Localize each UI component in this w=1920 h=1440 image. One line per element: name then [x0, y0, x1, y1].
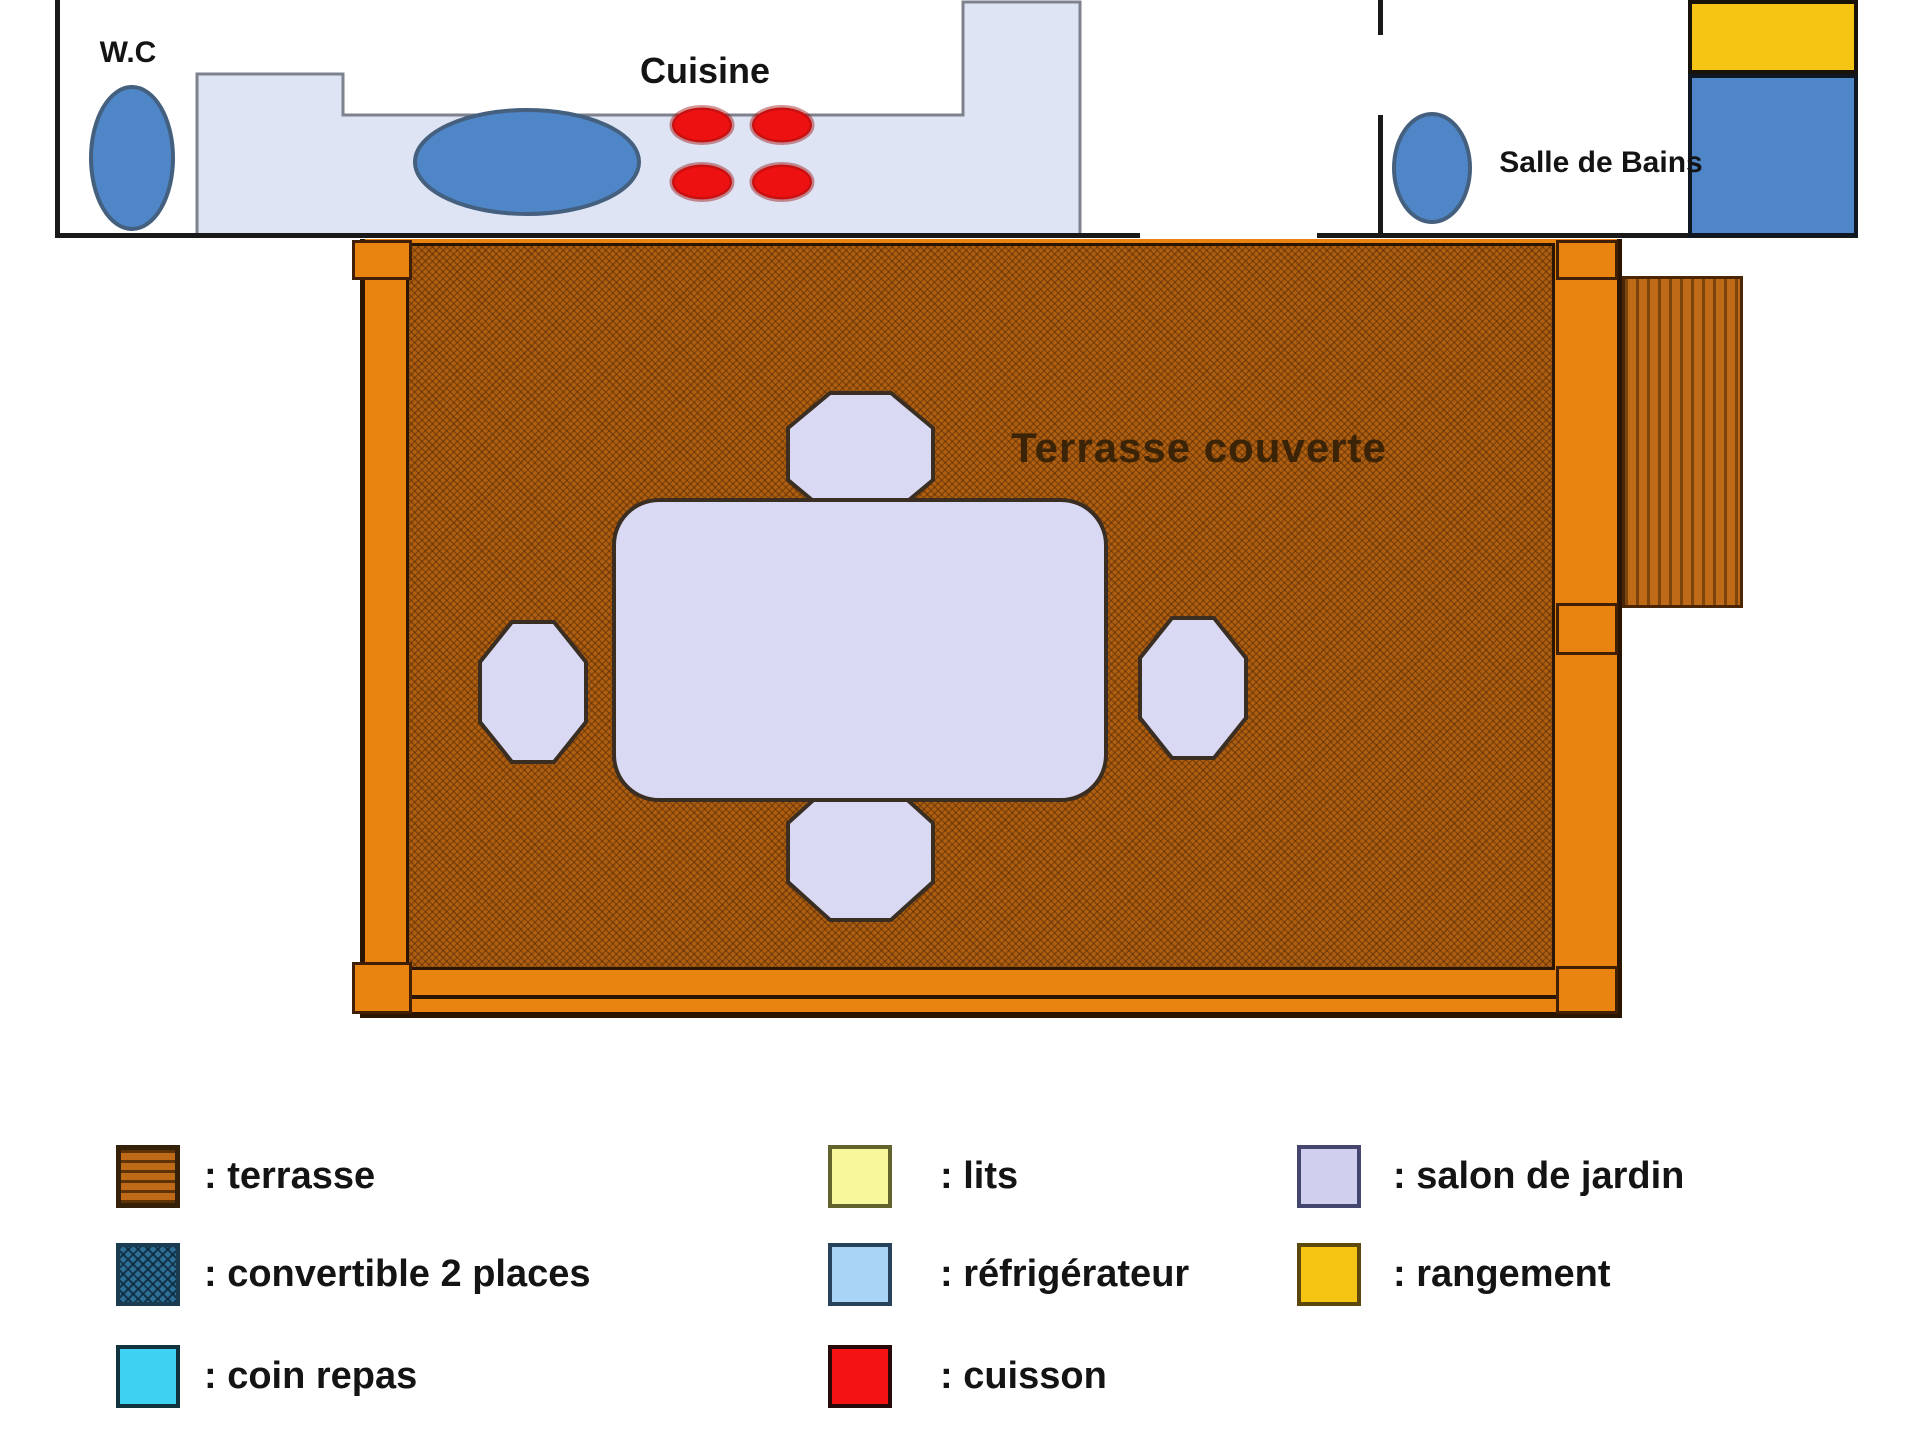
- legend-label-terrasse: : terrasse: [204, 1145, 375, 1208]
- legend-label-lits: : lits: [940, 1145, 1018, 1208]
- chair-bottom: [788, 785, 933, 920]
- chair-top: [788, 393, 933, 515]
- legend-swatch-rangement: [1297, 1243, 1361, 1306]
- garden-furniture-layer: [0, 0, 1920, 1100]
- legend-swatch-coin-repas: [116, 1345, 180, 1408]
- chair-right: [1140, 618, 1246, 758]
- garden-table: [614, 500, 1106, 800]
- legend-label-rangement: : rangement: [1393, 1243, 1610, 1306]
- terrace-label: Terrasse couverte: [949, 424, 1449, 472]
- legend-swatch-refrigerateur: [828, 1243, 892, 1306]
- legend-label-refrigerateur: : réfrigérateur: [940, 1243, 1189, 1306]
- legend-label-cuisson: : cuisson: [940, 1345, 1107, 1408]
- legend-swatch-salon-de-jardin: [1297, 1145, 1361, 1208]
- legend-swatch-terrasse: [116, 1145, 180, 1208]
- legend-swatch-cuisson: [828, 1345, 892, 1408]
- legend-label-convertible: : convertible 2 places: [204, 1243, 591, 1306]
- floor-plan: W.C Cuisine Salle de Bains Terrasse couv…: [0, 0, 1920, 1440]
- chair-left: [480, 622, 586, 762]
- legend-label-salon-de-jardin: : salon de jardin: [1393, 1145, 1684, 1208]
- legend-label-coin-repas: : coin repas: [204, 1345, 417, 1408]
- legend-swatch-lits: [828, 1145, 892, 1208]
- legend-swatch-convertible: [116, 1243, 180, 1306]
